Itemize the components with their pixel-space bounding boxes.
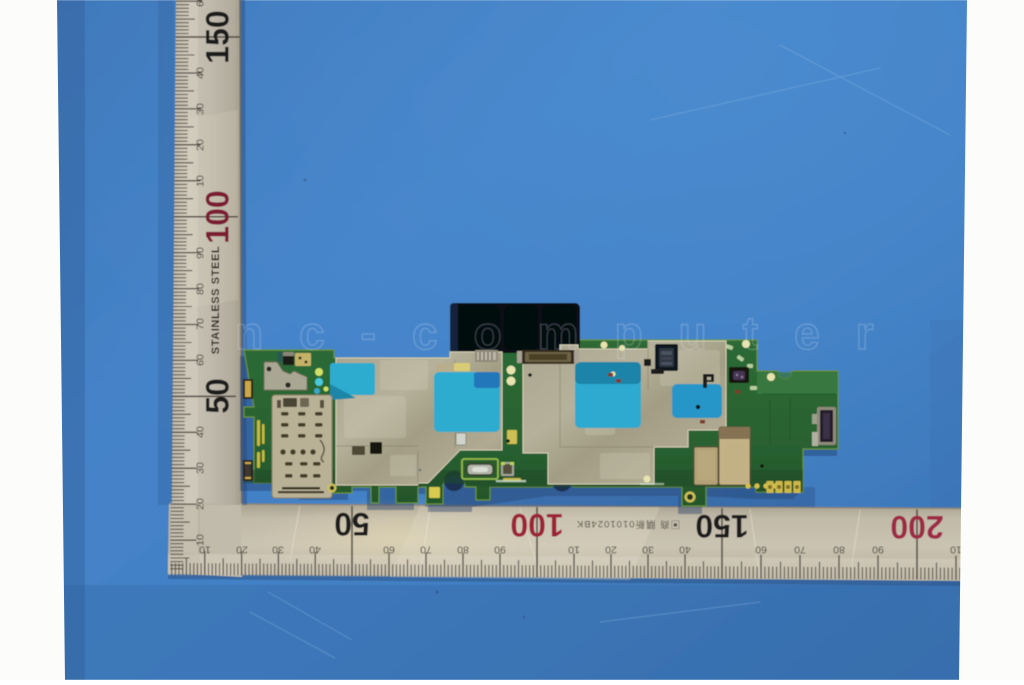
svg-text:20: 20 (605, 544, 617, 556)
svg-text:70: 70 (420, 544, 432, 556)
svg-text:100: 100 (510, 507, 563, 543)
svg-text:30: 30 (642, 544, 654, 556)
svg-text:20: 20 (195, 498, 207, 510)
svg-text:10: 10 (568, 544, 580, 556)
svg-text:10: 10 (950, 544, 962, 556)
svg-text:50: 50 (200, 378, 236, 414)
svg-text:90: 90 (872, 544, 884, 556)
svg-text:80: 80 (195, 283, 207, 295)
svg-text:100: 100 (200, 190, 236, 243)
svg-text:30: 30 (195, 462, 207, 474)
svg-text:nc-computer: nc-computer (235, 307, 910, 359)
svg-text:40: 40 (679, 544, 691, 556)
svg-text:10: 10 (195, 175, 207, 187)
svg-text:40: 40 (195, 67, 207, 79)
svg-text:60: 60 (755, 544, 767, 556)
svg-text:60: 60 (383, 544, 395, 556)
svg-text:200: 200 (890, 509, 943, 545)
svg-text:60: 60 (195, 0, 207, 7)
svg-text:150: 150 (695, 508, 748, 544)
svg-text:90: 90 (195, 247, 207, 259)
svg-text:▣商 購新0101024BK: ▣商 購新0101024BK (576, 518, 680, 530)
svg-text:50: 50 (334, 506, 370, 542)
svg-text:80: 80 (833, 544, 845, 556)
svg-text:70: 70 (195, 318, 207, 330)
svg-text:40: 40 (309, 544, 321, 556)
svg-text:STAINLESS STEEL: STAINLESS STEEL (210, 246, 222, 354)
svg-text:70: 70 (794, 544, 806, 556)
svg-text:60: 60 (195, 354, 207, 366)
svg-text:20: 20 (236, 544, 248, 556)
svg-text:40: 40 (195, 426, 207, 438)
svg-text:80: 80 (457, 544, 469, 556)
svg-text:90: 90 (494, 544, 506, 556)
svg-text:30: 30 (272, 544, 284, 556)
svg-text:30: 30 (195, 103, 207, 115)
svg-text:20: 20 (195, 139, 207, 151)
svg-text:10: 10 (195, 534, 207, 546)
svg-text:150: 150 (200, 10, 236, 63)
